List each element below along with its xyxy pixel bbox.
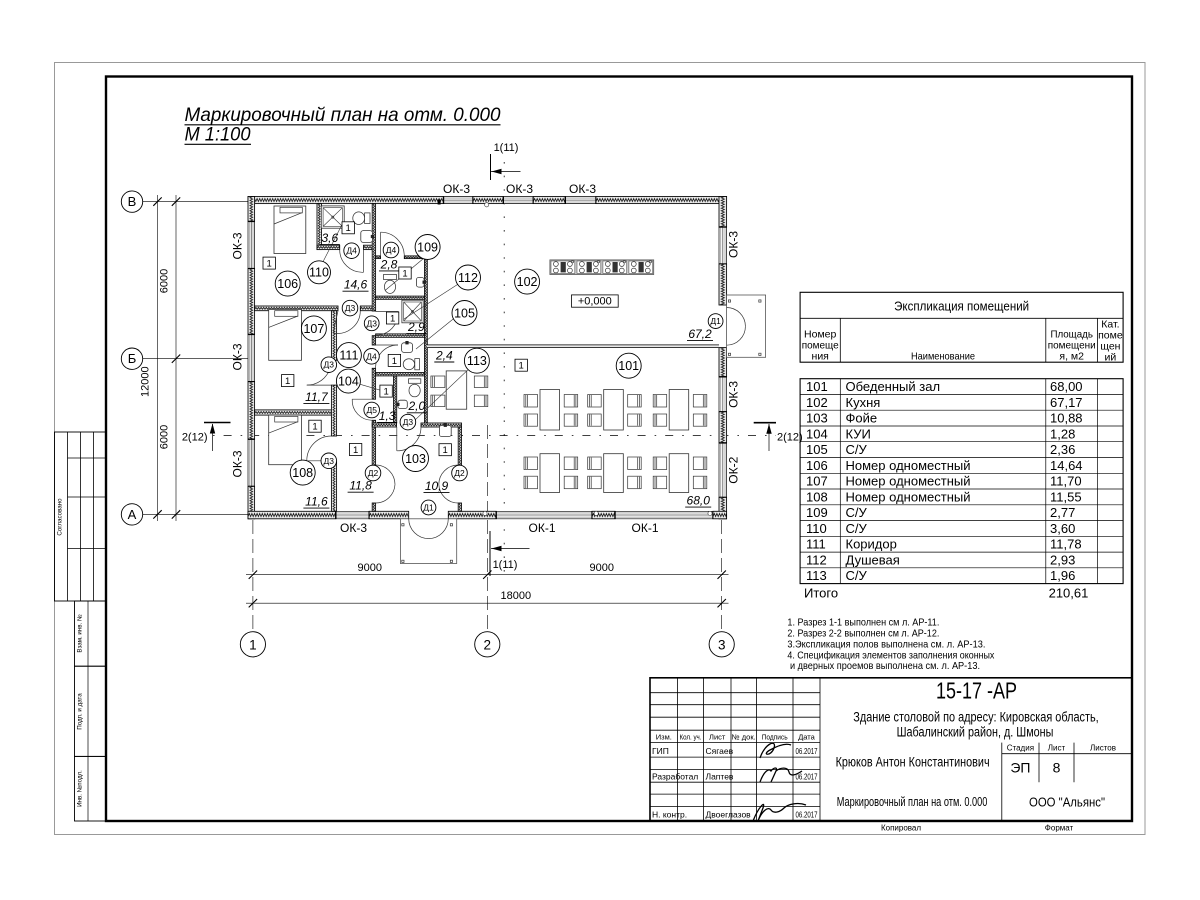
svg-text:Дата: Дата xyxy=(798,733,815,742)
svg-text:10,9: 10,9 xyxy=(425,479,449,493)
svg-text:ОК-3: ОК-3 xyxy=(506,182,533,196)
svg-text:2(12): 2(12) xyxy=(182,432,208,444)
svg-text:111: 111 xyxy=(806,537,826,552)
svg-text:Инв. №подл.: Инв. №подл. xyxy=(77,770,84,807)
svg-text:Стадия: Стадия xyxy=(1007,744,1034,753)
svg-text:Д3: Д3 xyxy=(366,318,377,328)
svg-text:Здание столовой по адресу: Кир: Здание столовой по адресу: Кировская обл… xyxy=(853,710,1098,725)
svg-text:06.2017: 06.2017 xyxy=(796,809,818,819)
svg-text:КУИ: КУИ xyxy=(846,426,871,441)
svg-text:Формат: Формат xyxy=(1045,824,1074,833)
svg-text:Лист: Лист xyxy=(1048,744,1066,753)
svg-text:110: 110 xyxy=(309,266,329,280)
svg-text:15-17 -АР: 15-17 -АР xyxy=(936,678,1017,704)
svg-text:1: 1 xyxy=(390,313,395,324)
svg-text:Маркировочный план на отм. 0.: Маркировочный план на отм. 0.000 xyxy=(837,795,988,809)
svg-text:1: 1 xyxy=(353,445,358,456)
svg-text:2,9: 2,9 xyxy=(407,320,425,334)
svg-text:Взам. инв. №: Взам. инв. № xyxy=(77,614,84,653)
svg-text:ОК-3: ОК-3 xyxy=(727,231,741,258)
svg-text:Копировал: Копировал xyxy=(881,824,921,833)
svg-text:ГИП: ГИП xyxy=(652,746,669,756)
svg-text:112: 112 xyxy=(806,552,827,567)
svg-text:ОК-1: ОК-1 xyxy=(529,521,556,535)
svg-text:103: 103 xyxy=(405,452,426,466)
svg-text:103: 103 xyxy=(806,411,828,426)
svg-text:Номер одноместный: Номер одноместный xyxy=(846,474,971,489)
svg-text:М 1:100: М 1:100 xyxy=(185,124,251,146)
svg-text:1,3: 1,3 xyxy=(379,409,396,423)
svg-text:Д2: Д2 xyxy=(368,468,379,478)
svg-text:1(11): 1(11) xyxy=(493,559,518,571)
svg-text:1: 1 xyxy=(249,637,257,652)
svg-text:ЭП: ЭП xyxy=(1010,760,1030,776)
svg-text:101: 101 xyxy=(806,379,828,394)
svg-text:Подпись: Подпись xyxy=(762,733,788,742)
svg-text:и дверных проемов выполнена с: и дверных проемов выполнена см. л. АР-13… xyxy=(790,660,980,672)
svg-text:ОК-2: ОК-2 xyxy=(727,456,741,483)
svg-text:Н. контр.: Н. контр. xyxy=(652,809,687,819)
svg-text:Листов: Листов xyxy=(1090,744,1116,753)
svg-text:ОК-1: ОК-1 xyxy=(632,521,659,535)
svg-text:С/У: С/У xyxy=(846,505,868,520)
svg-text:ООО "Альянс": ООО "Альянс" xyxy=(1029,795,1105,810)
svg-text:+0,000: +0,000 xyxy=(578,295,612,307)
svg-text:Д5: Д5 xyxy=(366,405,377,415)
svg-text:Разработал: Разработал xyxy=(652,771,698,781)
svg-text:68,00: 68,00 xyxy=(1050,379,1083,394)
svg-text:11,55: 11,55 xyxy=(1050,489,1082,504)
svg-text:С/У: С/У xyxy=(846,521,868,536)
svg-text:11,8: 11,8 xyxy=(349,479,372,493)
svg-text:Кухня: Кухня xyxy=(846,395,881,410)
svg-text:Изм.: Изм. xyxy=(656,733,672,742)
svg-text:Подп. и дата: Подп. и дата xyxy=(77,693,84,730)
svg-text:ОК-3: ОК-3 xyxy=(231,232,245,259)
svg-text:106: 106 xyxy=(277,277,298,291)
svg-text:ОК-3: ОК-3 xyxy=(443,182,470,196)
svg-text:Д4: Д4 xyxy=(386,245,397,255)
svg-text:1: 1 xyxy=(402,268,407,279)
svg-text:9000: 9000 xyxy=(358,562,382,574)
svg-text:111: 111 xyxy=(339,349,358,363)
svg-text:ОК-3: ОК-3 xyxy=(569,182,596,196)
svg-text:1: 1 xyxy=(312,422,317,433)
svg-text:Экспликация помещений: Экспликация помещений xyxy=(894,299,1029,314)
svg-text:18000: 18000 xyxy=(501,590,532,602)
svg-text:102: 102 xyxy=(806,395,828,410)
svg-text:11,6: 11,6 xyxy=(305,495,328,509)
svg-text:Обеденный зал: Обеденный зал xyxy=(846,379,941,394)
svg-text:1: 1 xyxy=(267,259,272,270)
svg-text:Крюков Антон Константинович: Крюков Антон Константинович xyxy=(836,755,990,770)
svg-text:108: 108 xyxy=(292,466,313,480)
svg-text:Б: Б xyxy=(128,351,137,366)
svg-text:06.2017: 06.2017 xyxy=(796,746,818,756)
svg-text:11,78: 11,78 xyxy=(1050,537,1082,552)
svg-text:12000: 12000 xyxy=(140,366,152,397)
svg-text:Кол. уч.: Кол. уч. xyxy=(680,733,702,742)
svg-text:6000: 6000 xyxy=(159,269,171,293)
svg-text:ОК-3: ОК-3 xyxy=(231,343,245,370)
svg-text:104: 104 xyxy=(338,375,359,389)
svg-text:Д1: Д1 xyxy=(423,503,434,513)
svg-text:Шабалинский район, д. Шмоны: Шабалинский район, д. Шмоны xyxy=(897,725,1054,740)
svg-text:67,2: 67,2 xyxy=(688,327,712,341)
svg-text:1: 1 xyxy=(285,376,290,387)
svg-text:109: 109 xyxy=(417,240,438,254)
svg-text:8: 8 xyxy=(1053,760,1061,776)
svg-text:1(11): 1(11) xyxy=(494,142,519,154)
svg-text:2,8: 2,8 xyxy=(380,257,398,271)
svg-text:105: 105 xyxy=(454,306,475,320)
svg-text:Д3: Д3 xyxy=(345,303,356,313)
svg-text:ий: ий xyxy=(1105,351,1117,363)
svg-text:14,6: 14,6 xyxy=(344,278,368,292)
svg-text:68,0: 68,0 xyxy=(687,494,711,508)
svg-text:106: 106 xyxy=(806,458,828,473)
svg-text:Д2: Д2 xyxy=(454,468,465,478)
svg-text:1,96: 1,96 xyxy=(1050,568,1075,583)
svg-text:Д3: Д3 xyxy=(403,417,414,427)
svg-text:67,17: 67,17 xyxy=(1050,395,1083,410)
svg-text:1: 1 xyxy=(392,356,397,367)
svg-text:210,61: 210,61 xyxy=(1049,586,1089,601)
svg-text:Итого: Итого xyxy=(804,586,838,601)
svg-text:2,93: 2,93 xyxy=(1050,552,1075,567)
svg-text:1: 1 xyxy=(519,361,524,372)
svg-text:Д3: Д3 xyxy=(324,360,335,370)
svg-text:Душевая: Душевая xyxy=(846,552,900,567)
svg-text:Сягаев: Сягаев xyxy=(706,746,734,756)
svg-text:110: 110 xyxy=(806,521,827,536)
svg-text:1: 1 xyxy=(443,445,448,456)
svg-text:2,36: 2,36 xyxy=(1050,442,1075,457)
svg-text:Лист: Лист xyxy=(709,733,726,742)
svg-text:Номер одноместный: Номер одноместный xyxy=(846,458,971,473)
svg-text:С/У: С/У xyxy=(846,442,868,457)
svg-text:Д1: Д1 xyxy=(710,316,721,326)
svg-text:104: 104 xyxy=(806,426,828,441)
svg-text:А: А xyxy=(128,507,137,522)
svg-text:10,88: 10,88 xyxy=(1050,411,1083,426)
svg-text:Двоеглазов: Двоеглазов xyxy=(706,809,752,819)
svg-text:Коридор: Коридор xyxy=(846,537,897,552)
svg-text:102: 102 xyxy=(517,275,538,289)
svg-text:108: 108 xyxy=(806,489,828,504)
svg-text:Д4: Д4 xyxy=(346,246,357,256)
svg-text:Номер одноместный: Номер одноместный xyxy=(846,489,971,504)
svg-text:я, м2: я, м2 xyxy=(1059,351,1084,363)
svg-text:11,70: 11,70 xyxy=(1050,474,1082,489)
svg-text:2: 2 xyxy=(484,637,492,652)
svg-text:109: 109 xyxy=(806,505,828,520)
svg-text:2,0: 2,0 xyxy=(407,399,425,413)
svg-text:113: 113 xyxy=(467,354,487,368)
svg-text:№ док.: № док. xyxy=(732,733,756,742)
svg-text:113: 113 xyxy=(806,568,827,583)
svg-text:ОК-3: ОК-3 xyxy=(340,521,367,535)
svg-text:ОК-3: ОК-3 xyxy=(727,381,741,408)
svg-text:1: 1 xyxy=(346,223,351,234)
svg-text:107: 107 xyxy=(303,322,324,336)
svg-text:ния: ния xyxy=(812,351,829,363)
svg-text:С/У: С/У xyxy=(846,568,868,583)
svg-text:2(12): 2(12) xyxy=(777,432,803,444)
svg-text:3: 3 xyxy=(718,637,726,652)
svg-text:107: 107 xyxy=(806,474,828,489)
svg-text:2,4: 2,4 xyxy=(435,348,453,362)
svg-text:Д4: Д4 xyxy=(366,351,377,361)
svg-text:1,28: 1,28 xyxy=(1050,426,1075,441)
svg-text:Согласовано: Согласовано xyxy=(57,498,64,536)
svg-text:ОК-3: ОК-3 xyxy=(231,450,245,477)
svg-text:В: В xyxy=(128,194,137,209)
svg-text:9000: 9000 xyxy=(590,562,614,574)
svg-text:1: 1 xyxy=(383,387,388,398)
svg-text:Наименование: Наименование xyxy=(911,351,975,363)
svg-text:11,7: 11,7 xyxy=(305,390,329,404)
svg-text:14,64: 14,64 xyxy=(1050,458,1083,473)
svg-text:Лаптев: Лаптев xyxy=(706,771,734,781)
svg-text:Фойе: Фойе xyxy=(846,411,878,426)
svg-text:3,60: 3,60 xyxy=(1050,521,1075,536)
svg-text:3,6: 3,6 xyxy=(321,231,338,245)
svg-text:101: 101 xyxy=(618,359,639,373)
svg-text:105: 105 xyxy=(806,442,828,457)
svg-text:2,77: 2,77 xyxy=(1050,505,1075,520)
svg-text:Д3: Д3 xyxy=(324,456,335,466)
svg-text:112: 112 xyxy=(458,271,478,285)
svg-text:6000: 6000 xyxy=(159,425,171,449)
